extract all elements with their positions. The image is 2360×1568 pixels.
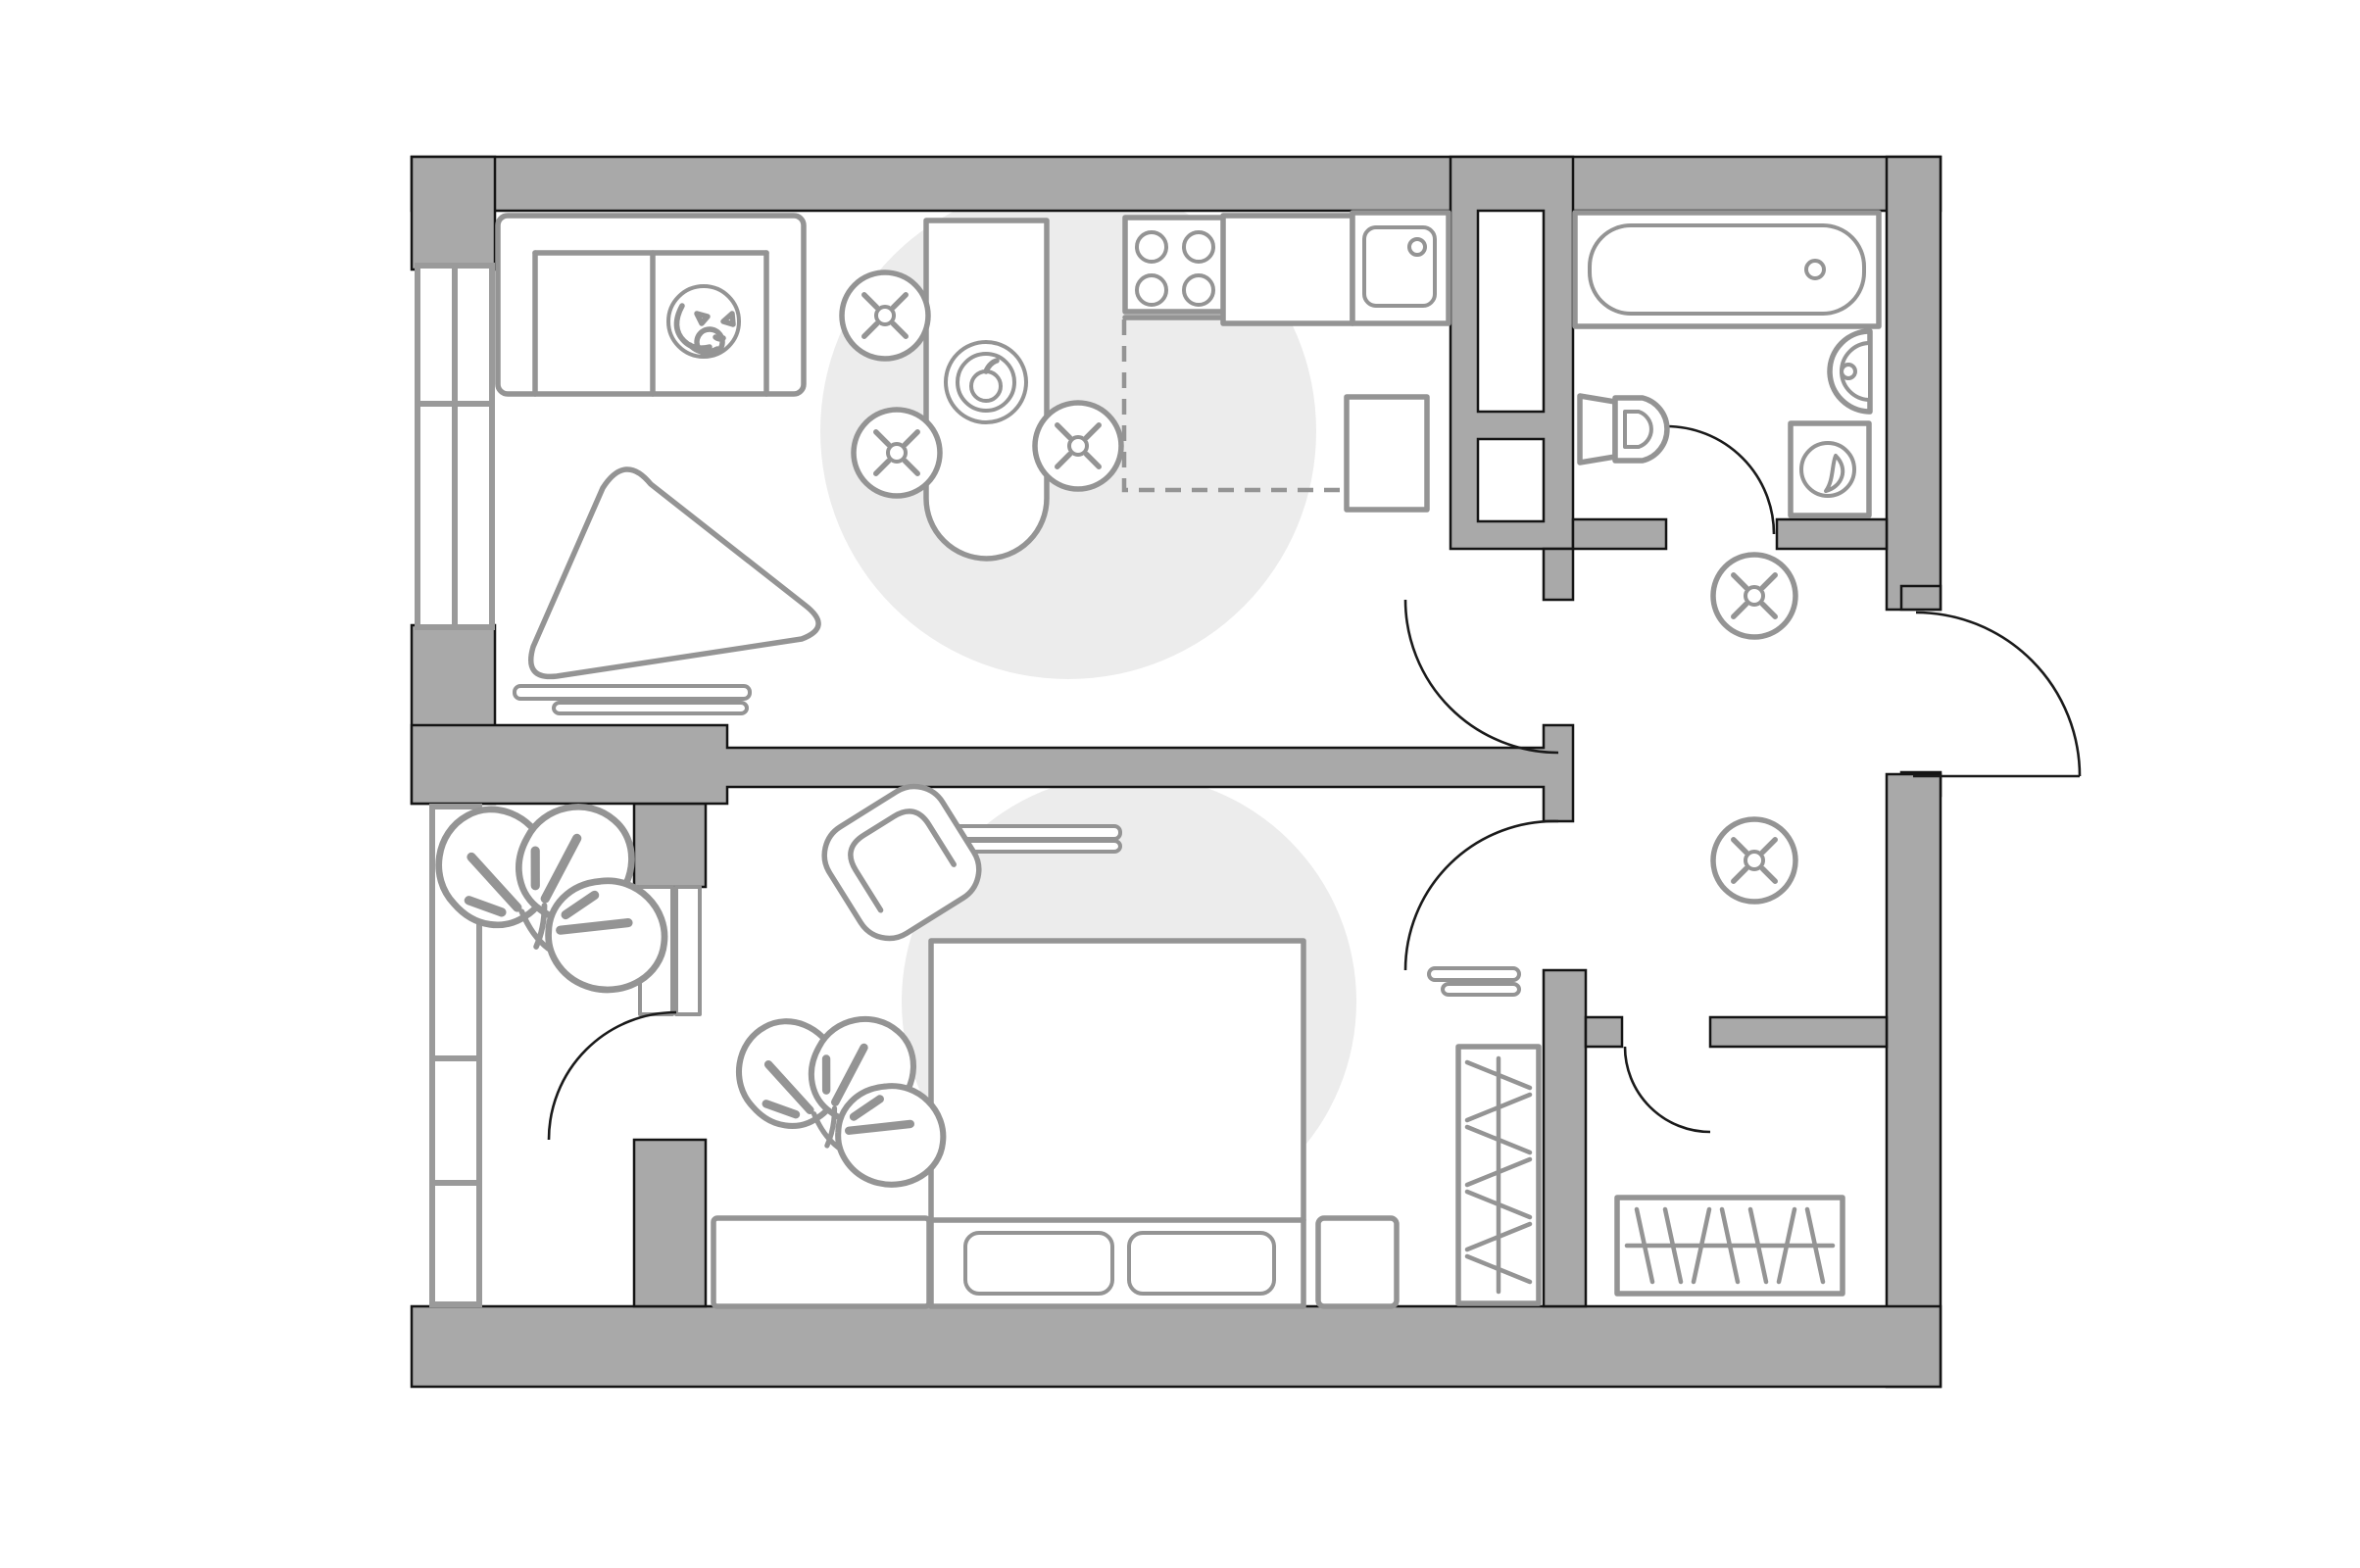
entrance-jamb-top	[1901, 586, 1941, 610]
dining-chair-hub	[876, 307, 894, 324]
hallway-stool-hub	[1745, 587, 1763, 605]
kitchen-sink-basin	[1364, 227, 1435, 306]
bathroom-sink	[1830, 331, 1870, 412]
stove	[1125, 218, 1225, 318]
top-left-corner-block	[412, 157, 495, 269]
bathtub	[1575, 213, 1879, 326]
small-shelf	[1429, 968, 1519, 995]
monstera-plant-leaf-vein	[530, 851, 540, 886]
bathroom-door-swing	[1666, 426, 1774, 534]
ventilation-shaft-upper	[1478, 211, 1544, 412]
hallway-wall-stub	[1544, 549, 1573, 600]
rug	[531, 469, 818, 676]
stove-burner	[1184, 232, 1213, 262]
bathroom-wall-right-segment	[1777, 519, 1887, 549]
living-room-door-swing	[1405, 600, 1558, 753]
corridor-wall-upper	[634, 804, 706, 887]
corridor-door-swing	[549, 1012, 676, 1140]
plate-with-apple-apple	[971, 371, 1001, 401]
kitchen-sink	[1352, 213, 1449, 323]
dining-chair	[842, 272, 928, 359]
corridor-wall-lower	[634, 1140, 706, 1306]
hallway-stool	[1713, 555, 1795, 637]
small-shelf-bar	[1429, 968, 1519, 980]
dining-chair	[854, 410, 940, 496]
sleeping-cat-ear	[697, 314, 708, 323]
ventilation-shaft-lower	[1478, 439, 1544, 521]
monstera-plant-leaf-vein	[822, 1058, 831, 1090]
tv-console-bar	[554, 703, 747, 713]
dining-chair-hub	[1069, 437, 1087, 455]
plate-with-apple	[946, 342, 1026, 422]
bathroom-sink-faucet	[1842, 365, 1855, 378]
kitchen-base-unit	[1347, 397, 1427, 510]
tv-console	[515, 686, 750, 713]
dining-chair-hub	[888, 444, 906, 462]
kitchen-sink-drain	[1409, 239, 1425, 255]
kitchen-counter	[1223, 216, 1352, 323]
bed	[931, 941, 1303, 1306]
bedroom-right-wall	[1544, 970, 1586, 1306]
hallway-stool	[1713, 819, 1795, 902]
storage-wardrobe	[1617, 1198, 1843, 1294]
hallway-stool-hub	[1745, 852, 1763, 869]
bedroom-door-swing	[1405, 821, 1558, 970]
bottom-wall	[412, 1306, 1941, 1387]
sofa	[498, 216, 804, 394]
living-room-window	[418, 266, 492, 627]
stove-burner	[1137, 232, 1166, 262]
nightstand	[1318, 1218, 1397, 1306]
entrance-door-swing	[1916, 612, 2080, 776]
bed-pillow	[1129, 1233, 1274, 1294]
top-wall	[412, 157, 1941, 211]
toilet	[1580, 396, 1667, 463]
dining-chair	[1035, 403, 1121, 489]
right-wall-lower	[1887, 774, 1941, 1387]
toilet-bowl-inner	[1625, 412, 1651, 447]
storage-wall-right-segment	[1710, 1017, 1887, 1047]
stove-burner	[1184, 275, 1213, 305]
bed-pillow	[965, 1233, 1112, 1294]
sleeping-cat	[668, 286, 739, 357]
bedroom-wardrobe	[1458, 1047, 1539, 1303]
bathtub-drain	[1806, 261, 1824, 278]
tv-console-bar	[515, 686, 750, 699]
bathroom-wall-left-segment	[1573, 519, 1666, 549]
storage-door-swing	[1625, 1047, 1710, 1132]
small-shelf-bar	[1443, 984, 1519, 995]
washing-machine	[1791, 423, 1869, 515]
floor-plan	[0, 0, 2360, 1568]
storage-wall-left-segment	[1586, 1017, 1622, 1047]
plant-box	[713, 1218, 929, 1306]
corridor-door-frame-panel	[676, 887, 700, 1014]
sleeping-cat-eye	[715, 337, 723, 339]
stove-burner	[1137, 275, 1166, 305]
floor-plan-page	[0, 0, 2360, 1568]
right-wall-upper	[1887, 157, 1941, 610]
toilet-tank	[1580, 396, 1615, 463]
